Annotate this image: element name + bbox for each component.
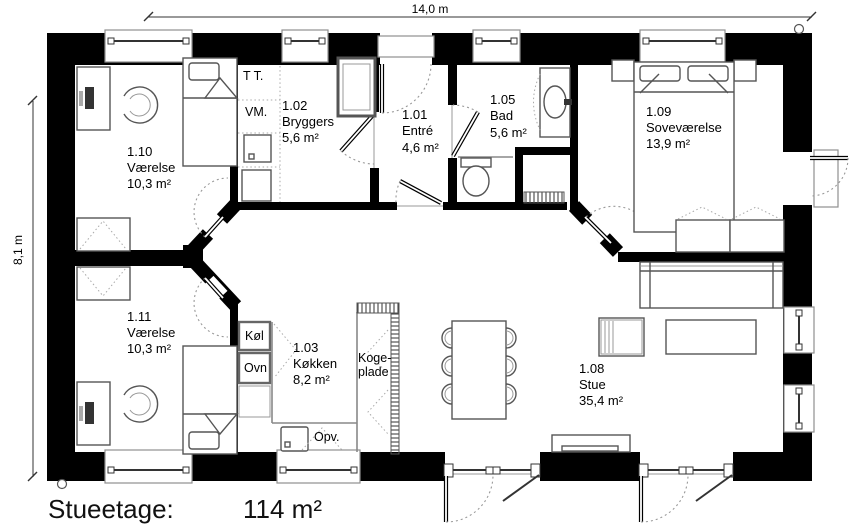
room-label-1-01: 1.01 Entré 4,6 m² (402, 107, 440, 155)
floor-plan-canvas: 14,0 m 8,1 m 1.10 Værelse 10,3 m² 1.02 B… (0, 0, 862, 527)
wall-niche-left (515, 147, 523, 210)
nightstand (734, 60, 756, 81)
dining-table (452, 321, 506, 419)
hall-wardrobe (338, 58, 375, 116)
sofa (640, 262, 783, 308)
room-number: 1.02 (282, 98, 307, 113)
counter-hatch-top (357, 303, 399, 313)
wall-niche-top (515, 147, 578, 155)
window-room111 (105, 450, 192, 483)
pillow (189, 432, 219, 449)
wall-entre-bad-upper (448, 65, 457, 105)
fridge-label: Køl (245, 329, 264, 343)
floor-plan-page: 14,0 m 8,1 m 1.10 Værelse 10,3 m² 1.02 B… (0, 0, 862, 527)
width-dimension-label: 14,0 m (412, 2, 449, 16)
desk-chair (124, 87, 158, 123)
room-area: 5,6 m² (490, 125, 528, 140)
pillow (189, 63, 219, 80)
downspout-icon (795, 25, 804, 34)
window-stue-east-2 (784, 385, 814, 432)
pillow (688, 66, 728, 81)
coffee-table (666, 320, 756, 354)
room-name: Soveværelse (646, 120, 722, 135)
wall-bryggers-entre-lower (370, 168, 379, 210)
washer-label: VM. (245, 105, 267, 119)
downspout-icon (58, 480, 67, 489)
room-number: 1.10 (127, 144, 152, 159)
wall-sove-south (618, 252, 783, 262)
room-number: 1.03 (293, 340, 318, 355)
entrance-door (378, 36, 434, 113)
armchair (599, 318, 644, 356)
room-label-1-10: 1.10 Værelse 10,3 m² (127, 144, 175, 191)
cabinet (239, 386, 270, 417)
room-area: 5,6 m² (282, 130, 320, 145)
room-name: Bad (490, 108, 513, 123)
wardrobe (77, 218, 130, 251)
dryer-label: T T. (243, 69, 263, 83)
room-name: Værelse (127, 325, 175, 340)
room-area: 4,6 m² (402, 140, 440, 155)
cooktop-label-1: Koge- (358, 351, 391, 365)
room-label-1-02: 1.02 Bryggers 5,6 m² (282, 98, 335, 145)
room-number: 1.08 (579, 361, 604, 376)
wardrobe (676, 220, 730, 252)
room-area: 35,4 m² (579, 393, 624, 408)
room-area: 13,9 m² (646, 136, 691, 151)
window-room110 (105, 30, 192, 62)
room-number: 1.09 (646, 104, 671, 119)
radiator (524, 192, 564, 203)
total-area: 114 m² (243, 494, 322, 524)
floor-title: Stueetage: (48, 494, 174, 524)
room-number: 1.05 (490, 92, 515, 107)
room-name: Bryggers (282, 114, 335, 129)
faucet-icon (564, 99, 572, 105)
room-label-1-11: 1.11 Værelse 10,3 m² (127, 309, 175, 356)
wall-entre-bad-lower (448, 158, 457, 210)
stue-furniture (442, 262, 783, 452)
room-label-1-03: 1.03 Køkken 8,2 m² (293, 340, 337, 387)
oven-label: Ovn (244, 361, 267, 375)
sovevaerelse-exterior-door (810, 150, 848, 207)
height-dimension-label: 8,1 m (11, 235, 25, 265)
counter-hatch-right (391, 313, 399, 454)
room-label-1-05: 1.05 Bad 5,6 m² (490, 92, 528, 140)
desk-chair (124, 386, 158, 422)
room-name: Stue (579, 377, 606, 392)
footer: Stueetage: 114 m² (48, 494, 322, 524)
cabinet (242, 170, 271, 201)
window-sovevaerelse (640, 30, 725, 62)
room-name: Køkken (293, 356, 337, 371)
room-number: 1.11 (127, 309, 151, 324)
room-area: 10,3 m² (127, 176, 172, 191)
nightstand (612, 60, 634, 81)
room-name: Entré (402, 123, 433, 138)
toilet-bowl (463, 166, 489, 196)
monitor-stand (79, 406, 83, 421)
monitor-stand (79, 91, 83, 106)
wall-bad-sove-upper (570, 65, 578, 155)
wall-bad-sove-lower (570, 155, 578, 210)
room-label-1-08: 1.08 Stue 35,4 m² (579, 361, 624, 408)
sovevaerelse-furniture (612, 60, 784, 252)
window-bad (473, 30, 520, 62)
pillow (640, 66, 680, 81)
cooktop-label-2: plade (358, 365, 389, 379)
dimension-top: 14,0 m (144, 2, 816, 21)
window-bryggers (282, 30, 328, 62)
room-number: 1.01 (402, 107, 427, 122)
monitor-icon (85, 402, 94, 424)
room-name: Værelse (127, 160, 175, 175)
room-area: 8,2 m² (293, 372, 331, 387)
wardrobe (730, 220, 784, 252)
dishwasher-label: Opv. (314, 430, 339, 444)
utility-sink (244, 135, 271, 162)
window-koekken (277, 450, 360, 483)
wall-room-divider (75, 250, 183, 266)
monitor-icon (85, 87, 94, 109)
room-area: 10,3 m² (127, 341, 172, 356)
window-stue-east-1 (784, 307, 814, 353)
dimension-left: 8,1 m (11, 96, 37, 481)
